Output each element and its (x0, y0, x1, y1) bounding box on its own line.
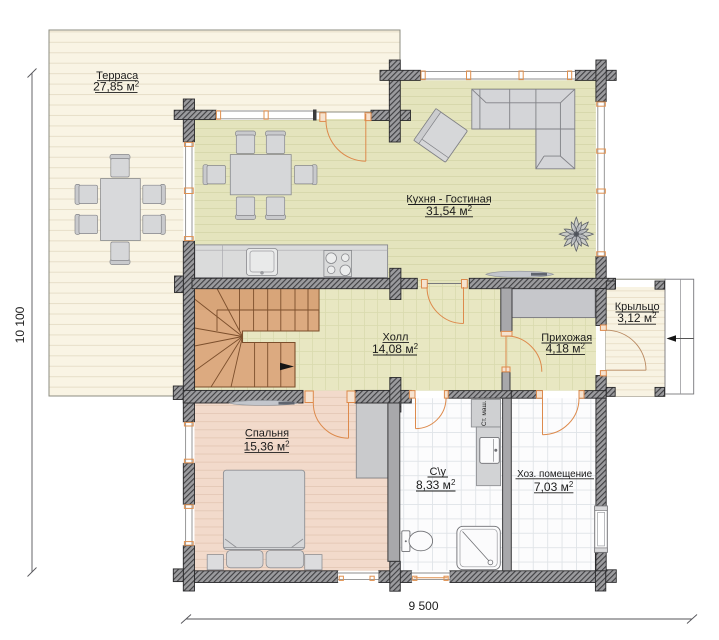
svg-text:Спальня: Спальня (245, 428, 289, 440)
svg-text:9 500: 9 500 (408, 599, 438, 613)
svg-text:Ст. маш.: Ст. маш. (481, 400, 488, 426)
svg-text:31,54 м2: 31,54 м2 (426, 204, 473, 218)
svg-text:Хоз. помещение: Хоз. помещение (517, 469, 592, 480)
svg-text:4,18 м2: 4,18 м2 (546, 341, 586, 355)
svg-text:27,85 м2: 27,85 м2 (93, 80, 140, 94)
svg-text:3,12 м2: 3,12 м2 (617, 311, 657, 325)
svg-text:С\у: С\у (429, 466, 446, 478)
svg-text:15,36 м2: 15,36 м2 (244, 439, 291, 453)
svg-text:8,33 м2: 8,33 м2 (416, 478, 456, 492)
svg-text:7,03 м2: 7,03 м2 (534, 480, 574, 494)
svg-text:14,08 м2: 14,08 м2 (372, 342, 419, 356)
svg-text:10 100: 10 100 (13, 306, 27, 343)
